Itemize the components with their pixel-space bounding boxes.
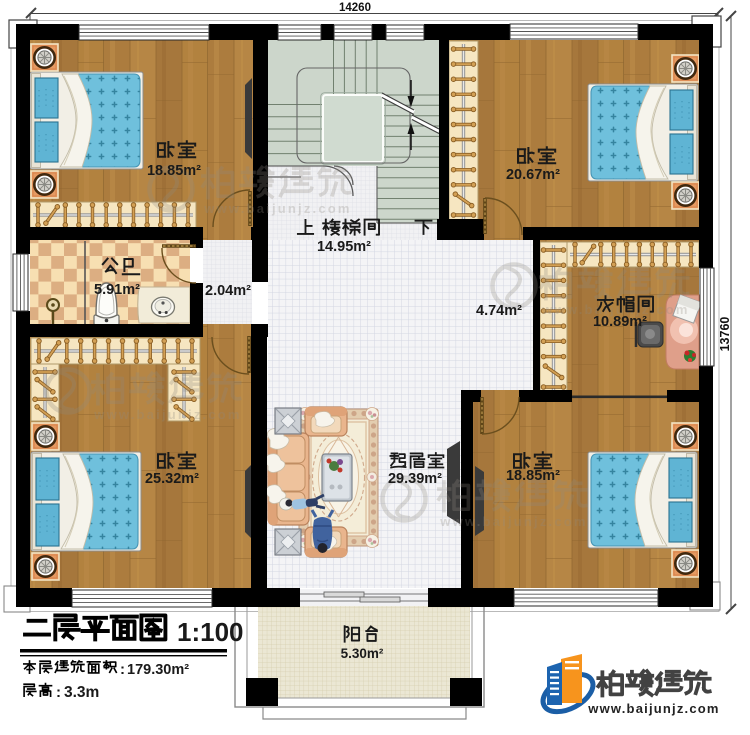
svg-text:1:100: 1:100 xyxy=(177,617,244,647)
svg-text:18.85m²: 18.85m² xyxy=(147,163,201,179)
svg-text:18.85m²: 18.85m² xyxy=(506,468,560,484)
svg-text::: : xyxy=(56,684,61,701)
svg-text:www.baijunjz.com: www.baijunjz.com xyxy=(439,514,587,529)
svg-text:25.32m²: 25.32m² xyxy=(145,471,199,487)
svg-text:20.67m²: 20.67m² xyxy=(506,167,560,183)
svg-text:4.74m²: 4.74m² xyxy=(476,303,522,319)
svg-text:www.baijunjz.com: www.baijunjz.com xyxy=(93,407,241,422)
svg-text:29.39m²: 29.39m² xyxy=(388,471,442,487)
svg-text:2.04m²: 2.04m² xyxy=(205,283,251,299)
svg-text::: : xyxy=(120,661,125,678)
svg-text:www.baijunjz.com: www.baijunjz.com xyxy=(203,201,351,216)
svg-text:www.baijunjz.com: www.baijunjz.com xyxy=(587,701,719,716)
svg-text:179.30m²: 179.30m² xyxy=(127,662,189,678)
svg-text:14260: 14260 xyxy=(339,2,371,14)
svg-text:5.91m²: 5.91m² xyxy=(94,282,140,298)
svg-text:13760: 13760 xyxy=(718,317,732,352)
svg-text:14.95m²: 14.95m² xyxy=(317,239,371,255)
svg-text:3.3m: 3.3m xyxy=(64,684,99,701)
svg-text:5.30m²: 5.30m² xyxy=(341,646,384,661)
svg-text:10.89m²: 10.89m² xyxy=(593,314,647,330)
